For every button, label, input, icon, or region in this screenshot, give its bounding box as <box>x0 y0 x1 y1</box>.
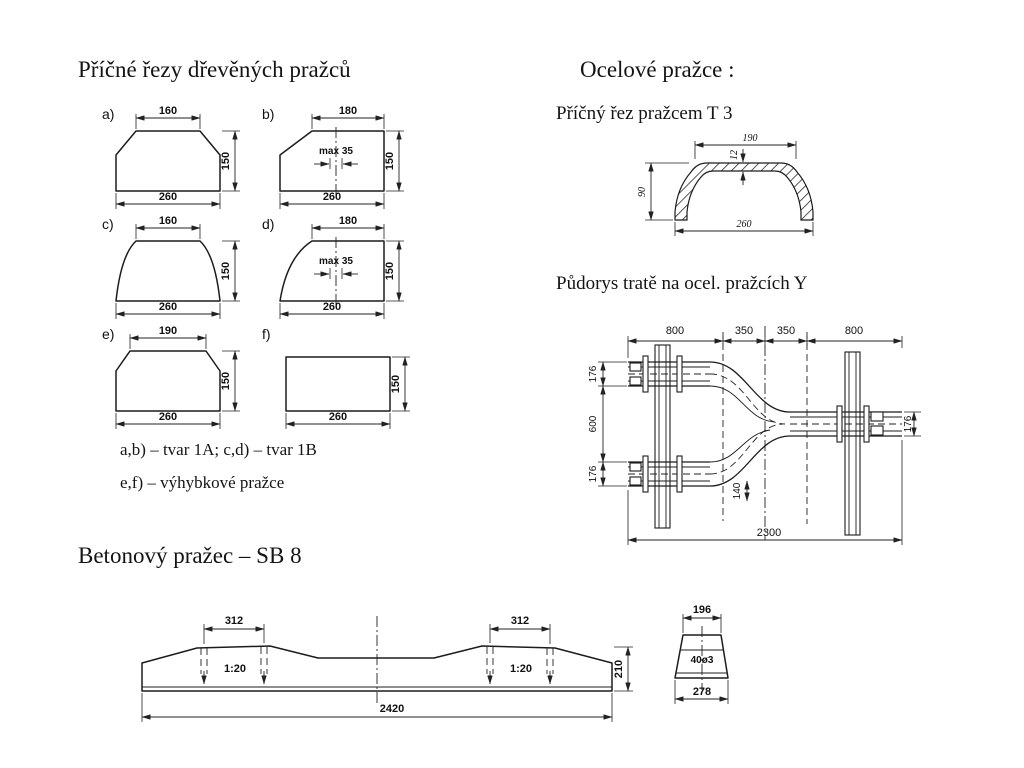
wood-section-b-figure: b) 180 max 35 150 260 <box>252 103 422 215</box>
t3-section-caption: Příčný řez pražcem T 3 <box>556 103 733 125</box>
concrete-sleeper-side-figure: 312 312 1:20 1:20 2420 210 <box>128 592 643 737</box>
dim-bottom-width: 260 <box>329 411 347 423</box>
rail-seat-slope-right: 1:20 <box>510 663 532 675</box>
dim-350-left: 350 <box>735 325 753 337</box>
dim-2300-total: 2300 <box>757 527 781 539</box>
sleeper-b-outline <box>280 131 384 191</box>
concrete-sleeper-title: Betonový pražec – SB 8 <box>78 543 302 569</box>
dim-height: 150 <box>220 262 232 280</box>
right-rail <box>845 352 860 535</box>
dim-top-width: 190 <box>159 325 177 337</box>
dim-176-right: 176 <box>903 415 914 432</box>
dim-top-width: 160 <box>159 215 177 227</box>
dim-176-top: 176 <box>588 365 599 382</box>
slide: { "slide": { "title_wood": "Příčné řezy … <box>0 0 1024 768</box>
figure-label: d) <box>262 216 274 232</box>
dim-height: 150 <box>390 375 402 393</box>
dim-bottom-width: 260 <box>323 191 341 203</box>
dim-350-right: 350 <box>777 325 795 337</box>
sleeper-arm-bottom <box>628 424 790 486</box>
wood-section-f-figure: f) 150 260 <box>252 323 422 435</box>
dim-312-left: 312 <box>225 615 243 627</box>
shape-legend-line2: e,f) – výhybkové pražce <box>120 473 284 493</box>
wood-sections-title: Příčné řezy dřevěných pražců <box>78 57 351 83</box>
figure-label: c) <box>102 216 114 232</box>
y-sleeper-plan-figure: 800 350 350 800 176 600 176 176 140 2300 <box>585 318 930 548</box>
dim-height: 150 <box>384 152 396 170</box>
dim-196-top: 196 <box>693 604 711 616</box>
sleeper-c-outline <box>116 241 220 301</box>
dim-top-width: 190 <box>743 133 758 144</box>
dim-top-width: 160 <box>159 105 177 117</box>
sleeper-e-outline <box>116 351 220 411</box>
rail-seat-slope-left: 1:20 <box>224 663 246 675</box>
dim-top-width: 180 <box>339 105 357 117</box>
figure-label: f) <box>262 326 271 342</box>
heart-tolerance-note: max 35 <box>319 256 353 267</box>
left-rail <box>655 345 670 528</box>
dim-height: 150 <box>220 152 232 170</box>
figure-label: b) <box>262 106 274 122</box>
dim-web-thickness: 12 <box>729 150 740 160</box>
wood-section-e-figure: e) 190 150 260 <box>88 323 258 435</box>
dim-height: 150 <box>220 372 232 390</box>
dim-bottom-width: 260 <box>159 301 177 313</box>
wood-section-d-figure: d) 180 max 35 150 260 <box>252 213 422 325</box>
figure-label: a) <box>102 106 114 122</box>
heart-tolerance-note: max 35 <box>319 146 353 157</box>
wood-section-a-figure: a) 160 150 260 <box>88 103 258 215</box>
sleeper-d-outline <box>280 241 384 301</box>
dim-bottom-width: 260 <box>159 411 177 423</box>
dim-height: 150 <box>384 262 396 280</box>
dim-600: 600 <box>588 415 599 432</box>
t3-profile-outline <box>675 163 813 220</box>
dim-800-right: 800 <box>845 325 863 337</box>
dim-top-width: 180 <box>339 215 357 227</box>
t3-section-figure: 190 12 90 260 <box>635 128 870 240</box>
dim-312-right: 312 <box>511 615 529 627</box>
sleeper-arm-top <box>628 362 790 424</box>
dim-176-bottom: 176 <box>588 465 599 482</box>
sleeper-a-outline <box>116 131 220 191</box>
dim-bottom-width: 260 <box>159 191 177 203</box>
dim-800-left: 800 <box>666 325 684 337</box>
dim-2420-length: 2420 <box>380 703 404 715</box>
figure-label: e) <box>102 326 114 342</box>
wire-count-label: 40ø3 <box>691 655 714 666</box>
steel-sleepers-title: Ocelové pražce : <box>580 57 735 83</box>
dim-278-bottom: 278 <box>693 686 711 698</box>
y-plan-caption: Půdorys tratě na ocel. pražcích Y <box>556 273 807 295</box>
dim-bottom-width: 260 <box>737 219 752 230</box>
shape-legend-line1: a,b) – tvar 1A; c,d) – tvar 1B <box>120 440 317 460</box>
wood-section-c-figure: c) 160 150 260 <box>88 213 258 325</box>
concrete-sleeper-end-figure: 196 40ø3 278 <box>648 588 778 718</box>
dim-210-height: 210 <box>613 660 625 678</box>
dim-bottom-width: 260 <box>323 301 341 313</box>
sleeper-f-outline <box>286 357 390 411</box>
dim-140-offset: 140 <box>732 482 743 499</box>
dim-height: 90 <box>637 187 648 197</box>
